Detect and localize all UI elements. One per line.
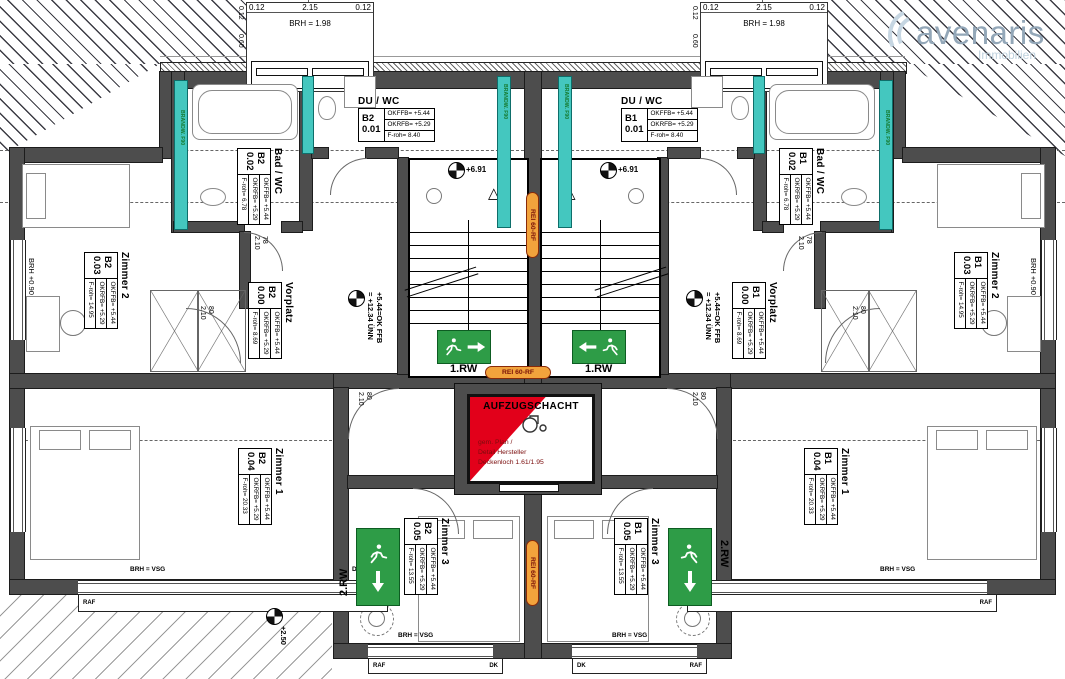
room-label-vorplatz-left: Vorplatz B20.00 OKFFB= +5.44OKRFB= +5.29… xyxy=(248,282,294,359)
room-label-badwc-right: Bad / WC B10.02 OKFFB= +5.44OKRFB= +5.29… xyxy=(779,148,825,225)
wall-du-bottom-right-a xyxy=(668,148,700,158)
wall-mid-right xyxy=(731,374,1055,388)
elevator-note: Deckenloch 1.61/1.95 xyxy=(478,459,544,466)
bathtub-inner xyxy=(775,90,869,134)
dormer-vdim: 0.60 xyxy=(691,34,698,48)
window-left-lower xyxy=(10,428,26,532)
window-pane xyxy=(710,68,762,76)
firewall-label: BRANDW. F90 xyxy=(884,110,890,145)
wall-z3-top-left xyxy=(348,476,458,488)
wall-right-upper xyxy=(891,72,905,158)
room-label-zimmer3-left: Zimmer 3 B20.05 OKFFB= +5.44OKRFB= +5.29… xyxy=(404,518,450,595)
door-dimension: 802.10 xyxy=(356,392,372,406)
pillow xyxy=(554,520,594,539)
roof-hatch-left-wedge xyxy=(0,64,160,156)
arrow-down-icon xyxy=(369,569,387,593)
door-dimension: 782.10 xyxy=(796,236,812,250)
elevator-title: AUFZUGSCHACHT xyxy=(470,401,592,412)
stair-level: +6.91 xyxy=(618,165,638,174)
window-sill: WFBRAF xyxy=(687,594,997,612)
running-man-icon xyxy=(443,336,463,358)
dormer-vdim: 0.12 xyxy=(691,6,698,20)
pillow xyxy=(473,520,513,539)
room-label-zimmer1-left: Zimmer 1 B20.04 OKFFB= +5.44OKRFB= +5.29… xyxy=(238,448,284,525)
room-label-duwc-left: DU / WC B20.01 OKFFB= +5.44OKRFB= +5.29F… xyxy=(358,96,435,142)
arrow-left-icon xyxy=(578,339,598,355)
room-label-duwc-right: DU / WC B10.01 OKFFB= +5.44OKRFB= +5.29F… xyxy=(621,96,698,142)
window-brh-label: BRH +0.90 xyxy=(1029,258,1038,295)
logo-tagline: Immobilien xyxy=(978,48,1036,62)
window-label: BRH = VSG xyxy=(880,566,915,573)
wall-du-bottom-right-b xyxy=(738,148,754,158)
logo-wordmark: avenaris xyxy=(916,14,1045,52)
firewall-label: BRANDW. F90 xyxy=(502,84,508,119)
firewall-label: BRANDW. F90 xyxy=(563,84,569,119)
wall-stair-left xyxy=(398,158,408,374)
roof-hatch-right-wedge xyxy=(905,64,1065,156)
pillow xyxy=(89,430,131,450)
room-label-vorplatz-right: Vorplatz B10.00 OKFFB= +5.44OKRFB= +5.29… xyxy=(732,282,778,359)
room-label-zimmer3-right: Zimmer 3 B10.05 OKFFB= +5.44OKRFB= +5.29… xyxy=(614,518,660,595)
wall-du-bottom-left-b xyxy=(366,148,398,158)
stair-circle xyxy=(426,188,442,204)
level-marker xyxy=(348,290,365,307)
exit-sign-1rw-left xyxy=(437,330,491,364)
fire-rating-capsule: REI 60-RF xyxy=(526,192,539,258)
escape-route-label: 2.RW xyxy=(338,569,350,596)
bed xyxy=(927,426,1037,560)
teal-wall-bath-right xyxy=(879,80,893,230)
window-left-upper xyxy=(10,240,26,340)
dormer-brh: BRH = 1.98 xyxy=(247,13,373,28)
window-sill: RAFDK xyxy=(368,658,503,674)
pillow xyxy=(39,430,81,450)
arrow-down-icon xyxy=(681,569,699,593)
wall-wing-top-right xyxy=(903,148,1055,162)
stair-divider xyxy=(600,220,601,332)
firewall-label: BRANDW. F90 xyxy=(179,110,185,145)
sink xyxy=(841,188,867,206)
running-man-icon xyxy=(367,542,389,566)
elevator-door xyxy=(499,484,559,492)
main-level-label: +5.44=OK FFB= +12.34 ÜNN xyxy=(704,292,722,343)
window-label: BRH = VSG xyxy=(612,632,647,639)
stair-circle xyxy=(628,188,644,204)
corner-level-label: +2.50 xyxy=(279,626,288,645)
teal-wall-du-left xyxy=(302,76,314,154)
bed xyxy=(22,164,130,228)
teal-wall-du-right xyxy=(753,76,765,154)
running-man-icon xyxy=(679,542,701,566)
pillow xyxy=(26,173,46,219)
wall-z3-top-right xyxy=(598,476,717,488)
pillow xyxy=(986,430,1028,450)
door-dimension: 782.10 xyxy=(252,236,268,250)
dormer-dimensions: 0.122.150.12 xyxy=(247,3,373,13)
sink xyxy=(200,188,226,206)
pillow xyxy=(936,430,978,450)
chair xyxy=(60,310,86,336)
room-label-zimmer1-right: Zimmer 1 B10.04 OKFFB= +5.44OKRFB= +5.29… xyxy=(804,448,850,525)
main-level-label: +5.44=OK FFB= +12.34 ÜNN xyxy=(366,292,384,343)
window-pane xyxy=(312,68,364,76)
level-marker xyxy=(686,290,703,307)
pillow xyxy=(1021,173,1041,219)
teal-wall-bath-left xyxy=(174,80,188,230)
wall-mid-left xyxy=(10,374,334,388)
toilet xyxy=(318,96,336,120)
window-sill: DKRAF xyxy=(572,658,707,674)
window-label: BRH = VSG xyxy=(130,566,165,573)
wall-du-bottom-left-a xyxy=(312,148,328,158)
bathtub xyxy=(192,84,298,140)
exit-sign-1rw-right xyxy=(572,330,626,364)
level-marker xyxy=(266,608,283,625)
door-arc xyxy=(330,158,367,195)
desk xyxy=(26,296,60,352)
escape-route-label: 1.RW xyxy=(585,363,612,375)
dormer-vdim: 0.60 xyxy=(237,34,244,48)
window-pane xyxy=(256,68,308,76)
elevator-note: gem. Plan / xyxy=(478,439,512,446)
room-label-zimmer2-left: Zimmer 2 B20.03 OKFFB= +5.44OKRFB= +5.29… xyxy=(84,252,130,329)
room-label-badwc-left: Bad / WC B20.02 OKFFB= +5.44OKRFB= +5.29… xyxy=(237,148,283,225)
running-man-icon xyxy=(601,336,621,358)
plant-pot xyxy=(368,610,385,627)
elevator-cab: AUFZUGSCHACHT gem. Plan / Detail Herstel… xyxy=(467,394,595,484)
elevator-shaft: AUFZUGSCHACHT gem. Plan / Detail Herstel… xyxy=(455,384,601,494)
hoist-symbol xyxy=(516,415,550,437)
window-label: BRH = VSG xyxy=(398,632,433,639)
wall-bc-right xyxy=(717,388,731,658)
plant-pot xyxy=(684,610,701,627)
fire-rating-capsule: REI 60-RF xyxy=(526,540,539,606)
door-arc xyxy=(700,158,737,195)
door-dimension: 802.10 xyxy=(690,392,706,406)
wall-bad-bottom-left-b xyxy=(282,222,302,232)
stair-level: +6.91 xyxy=(466,165,486,174)
floor-plan: BRANDW. F90 BRANDW. F90 BRANDW. F90 BRAN… xyxy=(0,0,1065,679)
exit-sign-2rw-left xyxy=(356,528,400,606)
wall-bc-left xyxy=(334,388,348,658)
wall-wing-top-left xyxy=(10,148,162,162)
roof-hatch-top-left xyxy=(0,0,248,64)
fire-rating-capsule: REI 60-RF xyxy=(485,366,551,379)
door-dimension: 802.10 xyxy=(198,306,214,320)
arrow-right-icon xyxy=(466,339,486,355)
bathtub xyxy=(769,84,875,140)
level-marker xyxy=(448,162,465,179)
window-right-upper xyxy=(1041,240,1057,340)
desk xyxy=(1007,296,1041,352)
dormer-brh: BRH = 1.98 xyxy=(701,13,827,28)
window-pane xyxy=(766,68,818,76)
room-label-zimmer2-right: Zimmer 2 B10.03 OKFFB= +5.44OKRFB= +5.29… xyxy=(954,252,1000,329)
toilet xyxy=(731,96,749,120)
dormer-dimensions: 0.122.150.12 xyxy=(701,3,827,13)
door-dimension: 802.10 xyxy=(850,306,866,320)
bed xyxy=(30,426,140,560)
bed xyxy=(937,164,1045,228)
bathtub-inner xyxy=(198,90,292,134)
escape-route-label: 2.RW xyxy=(718,540,730,567)
dormer-vdim: 0.12 xyxy=(237,6,244,20)
window-right-lower xyxy=(1041,428,1057,532)
exit-sign-2rw-right xyxy=(668,528,712,606)
elevator-note: Detail Hersteller xyxy=(478,449,526,456)
escape-route-label: 1.RW xyxy=(450,363,477,375)
level-marker xyxy=(600,162,617,179)
window-sill: RAFWFB xyxy=(78,594,388,612)
window-brh-label: BRH +0.90 xyxy=(27,258,36,295)
